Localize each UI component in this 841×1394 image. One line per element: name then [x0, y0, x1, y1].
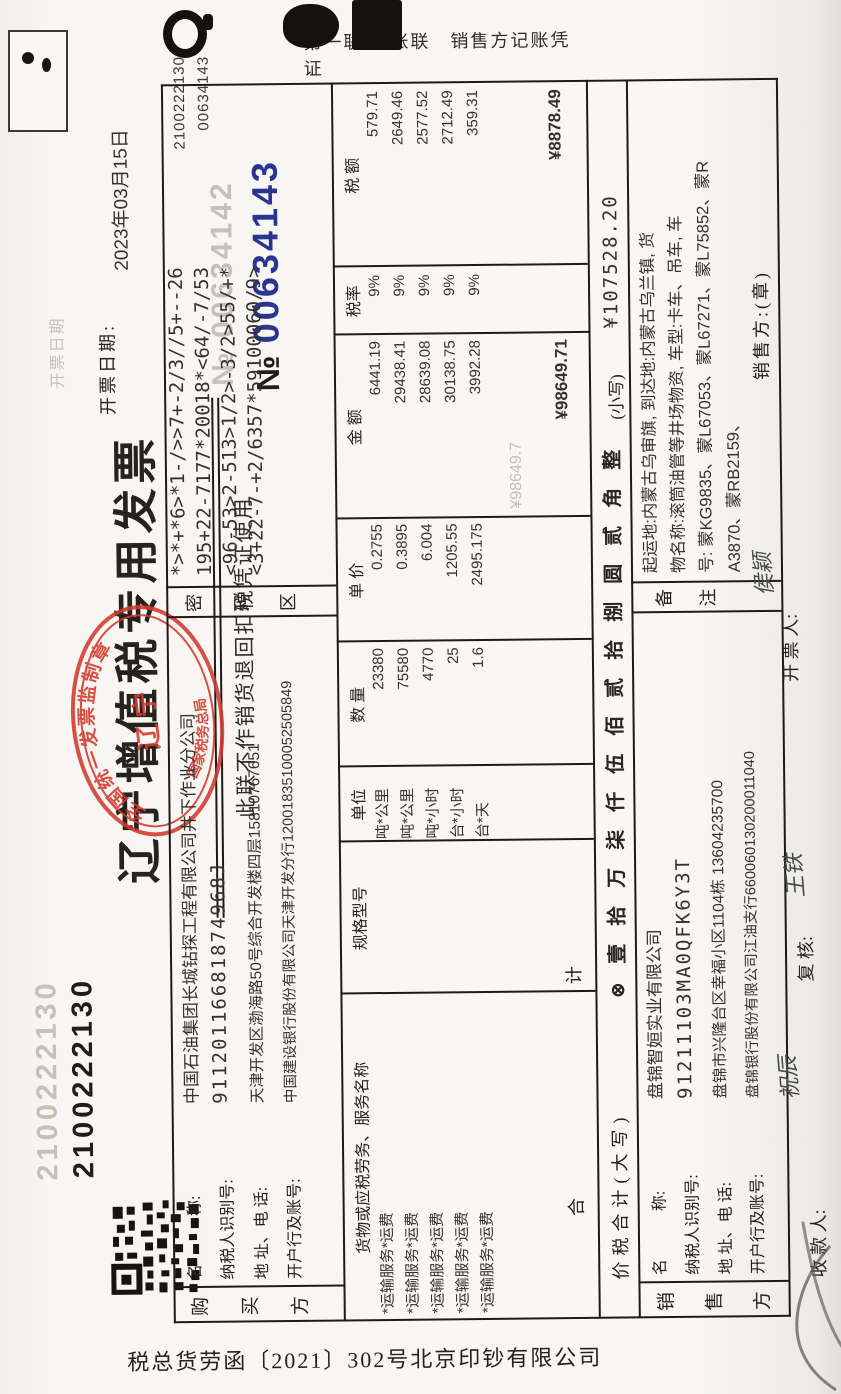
- seller-side-char-2: 售: [700, 1291, 727, 1310]
- row4-tax: 2712.49: [439, 90, 458, 266]
- row1-price: 0.2755: [369, 524, 387, 642]
- col-header-tax: 税 额: [338, 84, 364, 267]
- total-amount-ghost: ¥98649.7: [508, 442, 527, 509]
- row3-name: *运输服务*运费: [426, 1212, 448, 1314]
- row5-tax: 359.31: [464, 90, 483, 266]
- row3-amount: 28639.08: [417, 340, 436, 518]
- buyer-name-label: 名 称:: [180, 1120, 206, 1280]
- row3-unit: 吨*小时: [421, 788, 443, 839]
- seller-address-value: 盘锦市兴隆台区幸福小区1104栋 13604235700: [705, 780, 730, 1099]
- row1-qty: 23380: [370, 648, 388, 767]
- payee-signature: 祝辰: [770, 1055, 805, 1101]
- summary-small-label: (小写): [602, 374, 627, 420]
- invoice-rotated-layer: 2100222130 2100222130: [0, 0, 841, 1390]
- col-header-price: 单 价: [342, 519, 367, 642]
- reviewer-label: 复 核:: [792, 936, 818, 982]
- total-tax: ¥8878.49: [545, 89, 567, 265]
- punch-dot-1: [22, 52, 34, 64]
- scanned-invoice-page: 2100222130 2100222130: [0, 0, 841, 1394]
- invoice-code: 2100222130: [66, 977, 101, 1179]
- reviewer-signature: 王铁: [776, 853, 811, 899]
- col-header-amount: 金 额: [341, 335, 367, 519]
- drawer-signature: 侯颖: [744, 551, 779, 597]
- row5-taxrate: 9%: [466, 274, 484, 334]
- row4-price: 1205.55: [444, 523, 462, 641]
- pen-squiggle: [760, 1240, 840, 1394]
- password-line-3: <96-53>2-513>1/2>-3/2>55/+*: [217, 267, 242, 576]
- row2-unit: 吨*公里: [396, 788, 418, 839]
- scan-square-artifact: [352, 0, 402, 50]
- buyer-side-char-1: 购: [186, 1297, 213, 1316]
- password-label-char-2: 码: [228, 593, 254, 611]
- printer-credit-line: 税总货劳函〔2021〕302号北京印钞有限公司: [127, 1340, 607, 1377]
- buyer-side-char-2: 买: [236, 1296, 263, 1315]
- seller-side-char-1: 销: [652, 1292, 679, 1311]
- seller-taxid-label: 纳税人识别号:: [678, 1115, 704, 1275]
- buyer-taxid-value: 91120116681874968J: [207, 862, 232, 1104]
- row4-taxrate: 9%: [441, 274, 459, 334]
- row1-amount: 6441.19: [367, 341, 386, 519]
- seller-taxid-value: 91211103MA0QFK6Y3T: [672, 857, 697, 1099]
- row3-qty: 4770: [420, 647, 438, 766]
- seller-address-label: 地 址、电 话:: [711, 1114, 737, 1274]
- row5-name: *运输服务*运费: [476, 1211, 498, 1313]
- row3-price: 6.004: [419, 523, 437, 641]
- col-header-qty: 数 量: [344, 642, 369, 767]
- seller-bank-value: 盘锦银行股份有限公司江油支行660060130200011040: [738, 751, 763, 1098]
- row3-tax: 2577.52: [414, 90, 433, 266]
- drawer-label: 开 票 人:: [776, 614, 803, 682]
- summary-small-value: ¥107528.20: [599, 194, 622, 329]
- issue-date-label: 开票日期:: [93, 323, 120, 415]
- row4-amount: 30138.75: [442, 340, 461, 518]
- password-line-1: *>*+*6>*1-/>>7+-2/3//5+--26: [165, 267, 190, 576]
- invoice-code-ghost: 2100222130: [30, 979, 65, 1181]
- col-header-unit: 单位: [345, 767, 370, 842]
- col-header-spec: 规格型号: [346, 842, 372, 994]
- row2-name: *运输服务*运费: [401, 1212, 423, 1314]
- col-header-taxrate: 税率: [340, 267, 365, 335]
- summary-capital-amount: ⊗壹拾万柒仟伍佰贰拾捌圆贰角整: [596, 432, 631, 999]
- row1-unit: 吨*公里: [371, 788, 393, 839]
- row2-amount: 29438.41: [392, 341, 411, 519]
- remark-line-3: 号: 蒙KG9835、蒙L67053、蒙L67271、蒙L75852、蒙R: [689, 161, 717, 573]
- corner-bracket-mark: [8, 30, 68, 132]
- issue-date-ghost: 开票日期: [43, 316, 68, 388]
- buyer-bank-value: 中国建设银行股份有限公司天津开发分行12001835100052505849: [275, 681, 300, 1103]
- buyer-side-char-3: 方: [286, 1296, 313, 1315]
- buyer-name-value: 中国石油集团长城钻探工程有限公司井下作业分公司: [173, 713, 202, 1104]
- row4-qty: 25: [445, 647, 463, 766]
- tax-supervision-stamp: 全国统一发票监制章 辽 宁 国家税务总局: [45, 583, 254, 858]
- binder-ring-artifact: [163, 10, 207, 58]
- corner-code: 2100222130: [171, 56, 189, 198]
- total-amount: ¥98649.71: [552, 339, 574, 517]
- row5-qty: 1.6: [470, 647, 488, 766]
- row1-tax: 579.71: [364, 91, 383, 267]
- row1-name: *运输服务*运费: [376, 1212, 398, 1314]
- password-label-char-1: 密: [180, 594, 206, 612]
- summary-label: 价税合计(大写): [606, 1111, 634, 1279]
- password-line-2: 195+22-7177*20018*<64/-7/53: [191, 267, 216, 576]
- punch-dot-2: [42, 58, 51, 72]
- binder-tab-artifact: [203, 14, 213, 30]
- buyer-address-label: 地 址、电 话:: [247, 1119, 273, 1279]
- password-line-4: <3+22-7-+2/6357*59100060/9>: [243, 266, 268, 575]
- issue-date-value: 2023年03月15日: [105, 129, 133, 271]
- row2-taxrate: 9%: [391, 275, 409, 335]
- row5-amount: 3992.28: [467, 340, 486, 518]
- row2-qty: 75580: [395, 648, 413, 767]
- remark-line-4: A3870、蒙RB2159、: [719, 415, 745, 572]
- password-label-char-3: 区: [274, 593, 300, 611]
- svg-text:辽 宁: 辽 宁: [128, 690, 165, 752]
- copy-number-label: 第一联:记账联 销售方记账凭证: [303, 26, 572, 81]
- buyer-taxid-label: 纳税人识别号:: [213, 1120, 239, 1280]
- seller-stamp-label: 销售方:(章): [747, 270, 774, 380]
- row3-taxrate: 9%: [416, 274, 434, 334]
- remark-line-2: 物名称:滚筒油管等井场物资, 车型:卡车、吊车, 车: [661, 215, 689, 573]
- buyer-bank-label: 开户行及账号:: [280, 1119, 306, 1279]
- remark-line-1: 起运地:内蒙古乌审旗, 到达地:内蒙古乌兰镇, 货: [633, 232, 661, 573]
- row5-unit: 台*天: [471, 802, 492, 838]
- buyer-address-value: 天津开发区渤海路50号综合开发楼四层15810767651: [242, 743, 268, 1103]
- row1-taxrate: 9%: [366, 275, 384, 335]
- corner-number: 00634143: [195, 56, 213, 198]
- total-label: 合 计: [560, 926, 589, 1216]
- col-header-name: 货物或应税劳务、服务名称: [347, 994, 374, 1321]
- row4-name: *运输服务*运费: [451, 1211, 473, 1313]
- seller-name-label: 名 称:: [645, 1115, 671, 1275]
- row5-price: 2495.175: [469, 523, 487, 641]
- remark-label-char-2: 注: [694, 588, 720, 606]
- row2-tax: 2649.46: [389, 91, 408, 267]
- remark-label-char-1: 备: [650, 589, 676, 607]
- row4-unit: 台*小时: [446, 787, 468, 838]
- row2-price: 0.3895: [394, 524, 412, 642]
- seller-name-value: 盘锦智姮实业有限公司: [640, 929, 667, 1099]
